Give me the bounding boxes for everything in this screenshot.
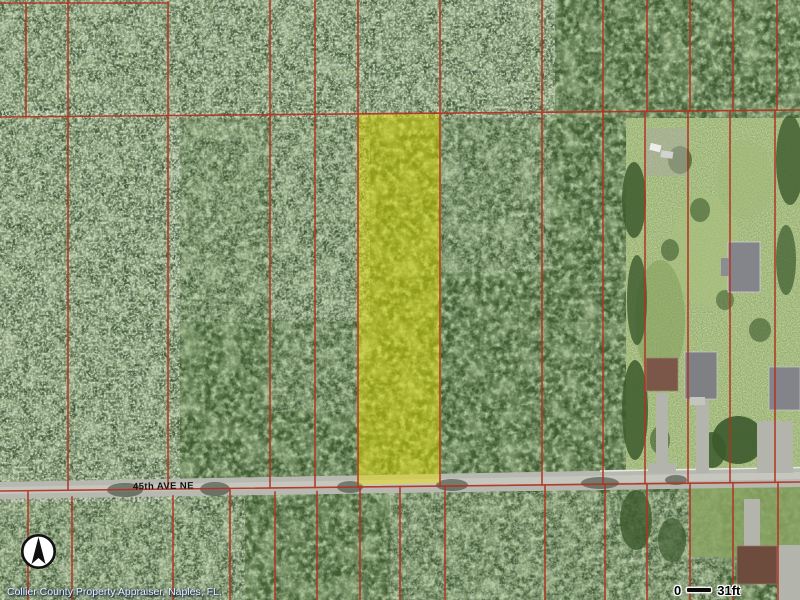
scale-bar: 0 31ft	[674, 582, 740, 598]
compass-north-arrow	[20, 533, 57, 570]
house-roof	[769, 367, 800, 410]
aerial-map-canvas[interactable]: 45th AVE NE Collier County Property Appr…	[0, 0, 800, 600]
north-arrow-icon	[20, 533, 57, 570]
house-porch	[690, 397, 705, 405]
scale-end-label: 31ft	[717, 583, 740, 598]
house-roof	[728, 242, 760, 292]
house-roof	[685, 352, 717, 399]
road-label: 45th AVE NE	[133, 480, 194, 492]
aerial-imagery	[0, 0, 800, 600]
house-roof	[737, 546, 777, 584]
clearing-with-vehicles	[645, 128, 687, 176]
scale-start-label: 0	[674, 583, 681, 598]
selected-parcel-highlight[interactable]	[357, 113, 441, 485]
map-attribution: Collier County Property Appraiser, Naple…	[7, 586, 222, 598]
scale-bar-segment	[687, 588, 711, 592]
house-roof	[646, 358, 678, 391]
